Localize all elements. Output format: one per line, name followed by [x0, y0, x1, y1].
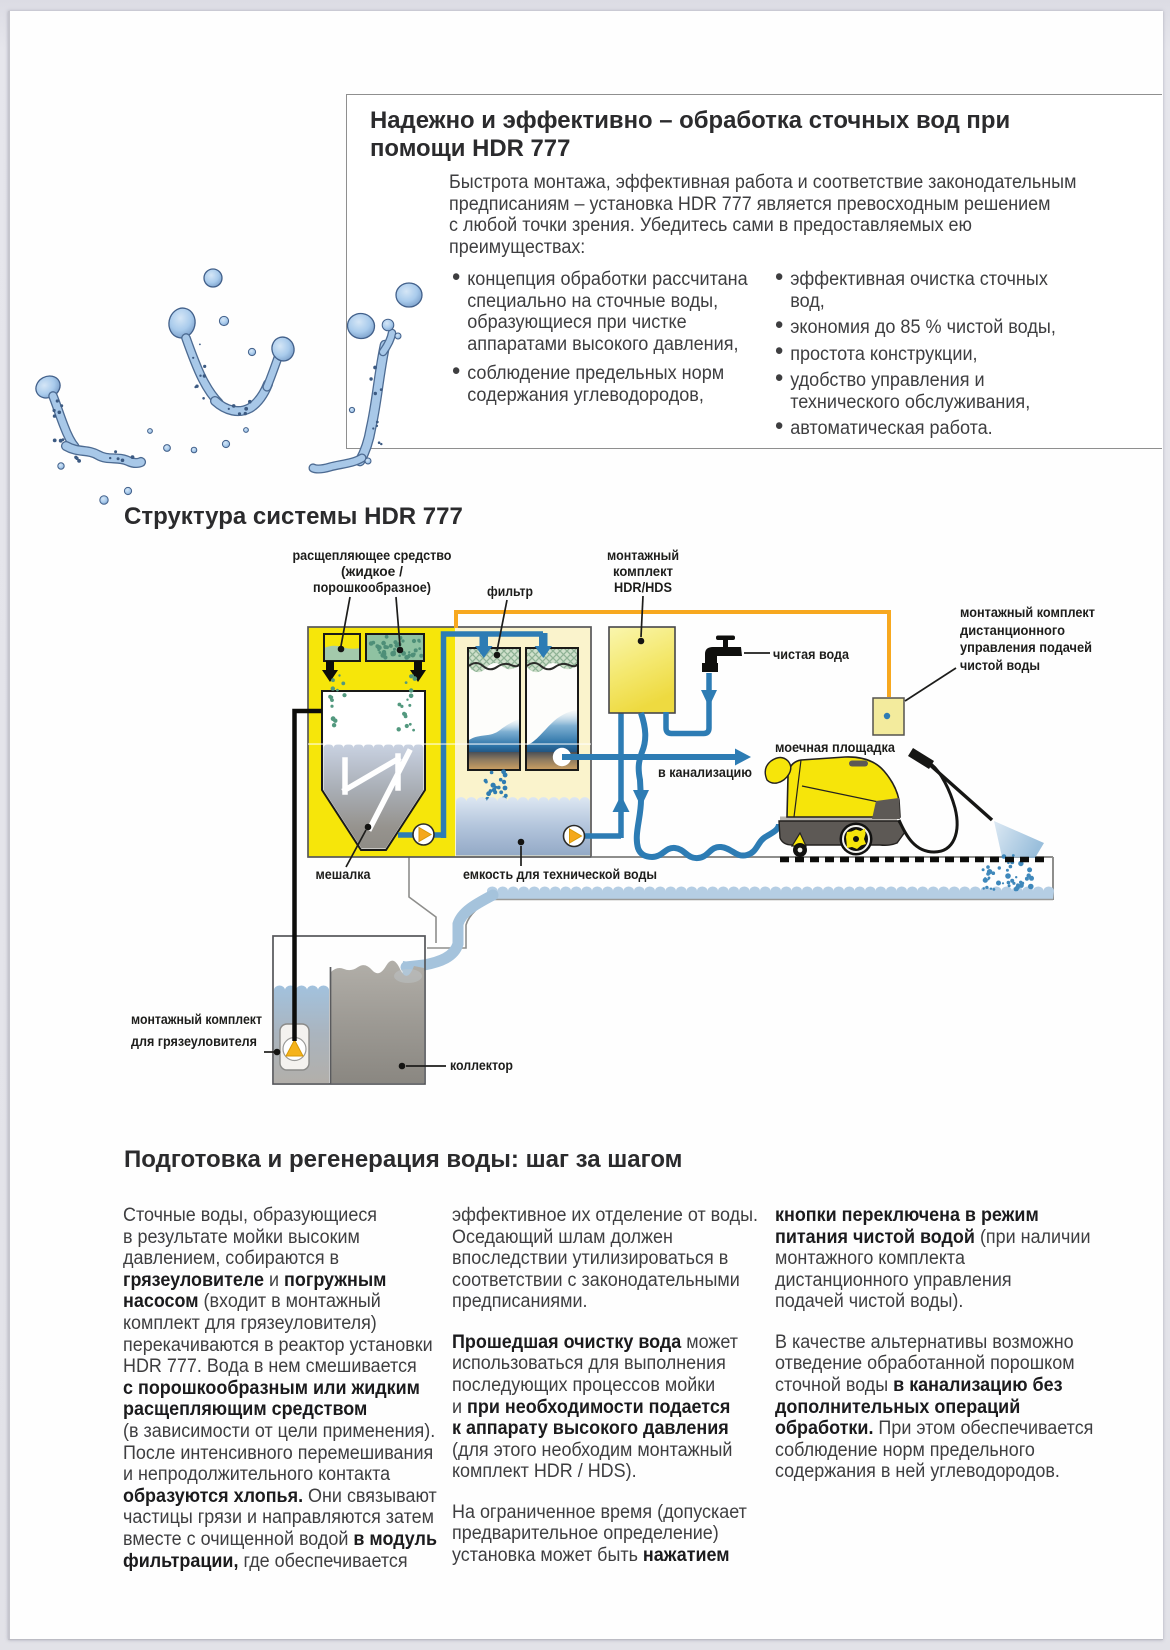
svg-text:комплект: комплект — [613, 564, 673, 579]
svg-text:монтажный комплект: монтажный комплект — [131, 1012, 262, 1027]
svg-text:чистой воды: чистой воды — [960, 658, 1040, 673]
svg-text:управления подачей: управления подачей — [960, 640, 1092, 655]
svg-text:фильтр: фильтр — [487, 584, 533, 599]
svg-text:дистанционного: дистанционного — [960, 623, 1065, 638]
svg-text:емкость для технической воды: емкость для технической воды — [463, 867, 657, 882]
svg-text:порошкообразное): порошкообразное) — [313, 580, 431, 595]
svg-text:для грязеуловителя: для грязеуловителя — [131, 1034, 257, 1049]
svg-text:коллектор: коллектор — [450, 1058, 513, 1073]
svg-text:монтажный: монтажный — [607, 548, 679, 563]
svg-text:HDR/HDS: HDR/HDS — [614, 580, 672, 595]
svg-text:монтажный комплект: монтажный комплект — [960, 605, 1095, 620]
svg-text:мешалка: мешалка — [316, 867, 371, 882]
svg-text:в канализацию: в канализацию — [658, 765, 752, 780]
svg-text:чистая вода: чистая вода — [773, 647, 849, 662]
svg-text:(жидкое /: (жидкое / — [341, 564, 403, 579]
svg-text:расщепляющее средство: расщепляющее средство — [293, 548, 452, 563]
svg-text:моечная площадка: моечная площадка — [775, 740, 895, 755]
